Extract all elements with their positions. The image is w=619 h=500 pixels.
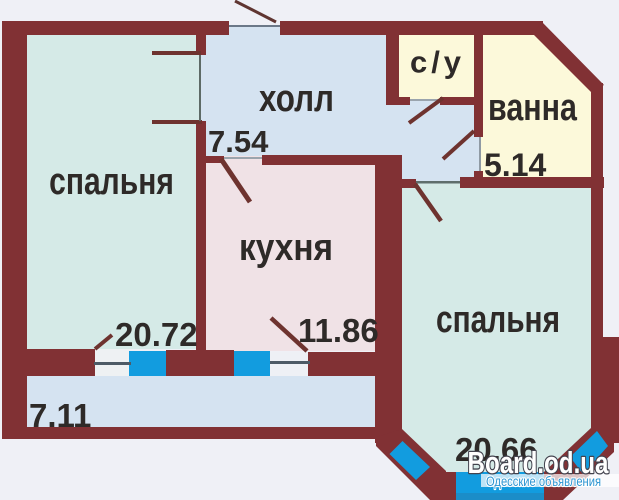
svg-text:спальня: спальня xyxy=(436,299,560,341)
svg-text:7.11: 7.11 xyxy=(29,397,91,434)
svg-text:спальня: спальня xyxy=(49,161,174,203)
svg-text:11.86: 11.86 xyxy=(298,312,379,349)
svg-text:7.54: 7.54 xyxy=(208,124,269,159)
svg-text:20.72: 20.72 xyxy=(115,316,198,353)
svg-text:кухня: кухня xyxy=(239,226,333,268)
svg-text:холл: холл xyxy=(259,77,334,120)
svg-text:ванна: ванна xyxy=(488,87,578,129)
svg-text:с/у: с/у xyxy=(410,45,465,80)
svg-text:Одесские объявления: Одесские объявления xyxy=(486,474,601,489)
svg-text:5.14: 5.14 xyxy=(484,147,546,183)
